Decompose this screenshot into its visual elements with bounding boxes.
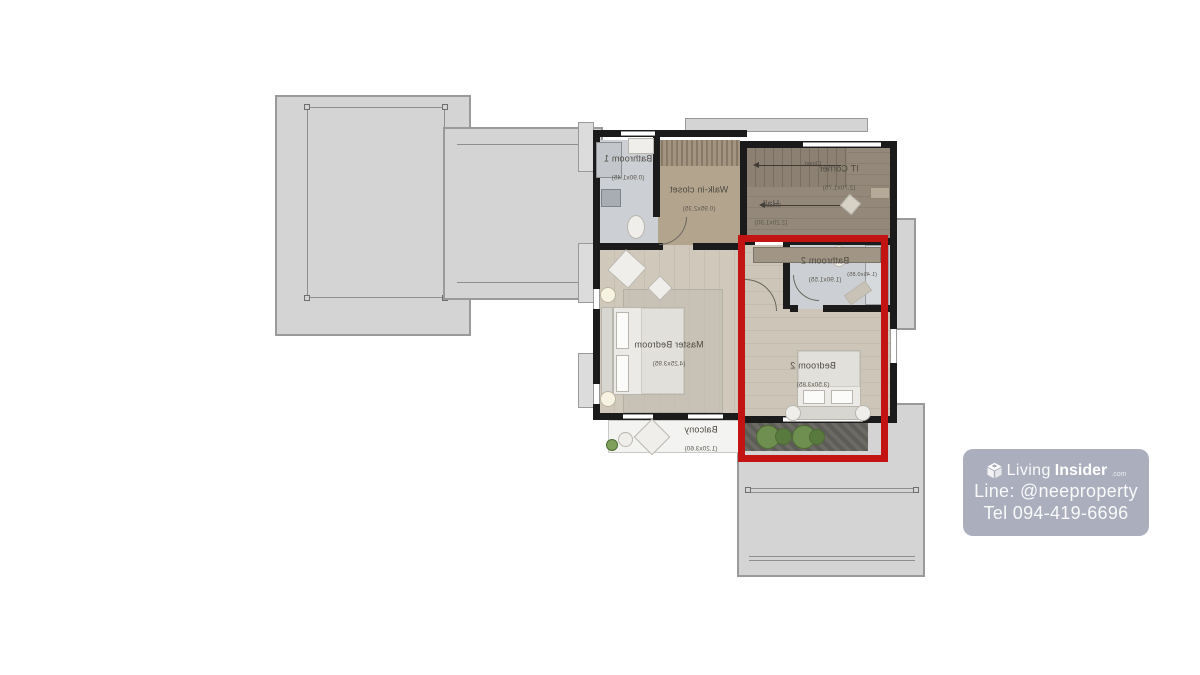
floor-plan-image: Bathroom 1 (0.90x1.45) Walk-in closet (0… (0, 0, 1200, 675)
window (688, 414, 723, 419)
brand-row: LivingInsider.com (986, 462, 1127, 480)
staircase (747, 145, 847, 187)
brand-word-insider: Insider (1055, 462, 1107, 480)
window (593, 384, 600, 404)
highlight-rectangle-bedroom2 (738, 235, 888, 462)
window (593, 289, 600, 309)
wall (890, 141, 897, 421)
window (623, 414, 653, 419)
window (803, 142, 881, 147)
bathroom1-washer (601, 189, 621, 207)
bedside-lamp (600, 287, 616, 303)
ghost-eave-left-1 (578, 122, 594, 172)
bathroom1-toilet (627, 215, 645, 239)
wall (593, 130, 747, 137)
bedside-lamp (600, 391, 616, 407)
master-bed-headboard (601, 307, 613, 395)
bathroom1-sink (628, 138, 654, 154)
balcony-table (618, 432, 633, 447)
watermark-card: LivingInsider.com Line: @neeproperty Tel… (963, 449, 1149, 536)
wall (653, 137, 660, 217)
window (890, 329, 897, 363)
master-bed-blanket (641, 308, 684, 394)
hall-arrow-head-icon (759, 202, 765, 208)
window (621, 131, 655, 136)
watermark-phone: Tel 094-419-6696 (984, 503, 1129, 524)
brand-tld: .com (1111, 471, 1126, 480)
balcony-plant (606, 439, 618, 451)
brand-word-living: Living (1007, 462, 1051, 480)
master-bed-pillow (616, 312, 629, 349)
walkin-closet-rack (658, 140, 740, 166)
master-bed-pillow (616, 355, 629, 392)
stairs-direction-arrow (759, 165, 841, 166)
wall (593, 243, 663, 250)
it-corner-desk (870, 187, 890, 199)
living-insider-cube-icon (986, 462, 1003, 479)
bathroom1-shower (596, 142, 622, 178)
ghost-roof-left (275, 95, 471, 336)
watermark-line-contact: Line: @neeproperty (974, 481, 1138, 502)
wall (740, 141, 747, 245)
wall (600, 413, 745, 420)
hall-direction-arrow (765, 205, 841, 206)
ghost-eave-left-3 (578, 353, 594, 408)
ghost-eave-left-2 (578, 243, 594, 303)
stairs-arrow-head-icon (753, 162, 759, 168)
